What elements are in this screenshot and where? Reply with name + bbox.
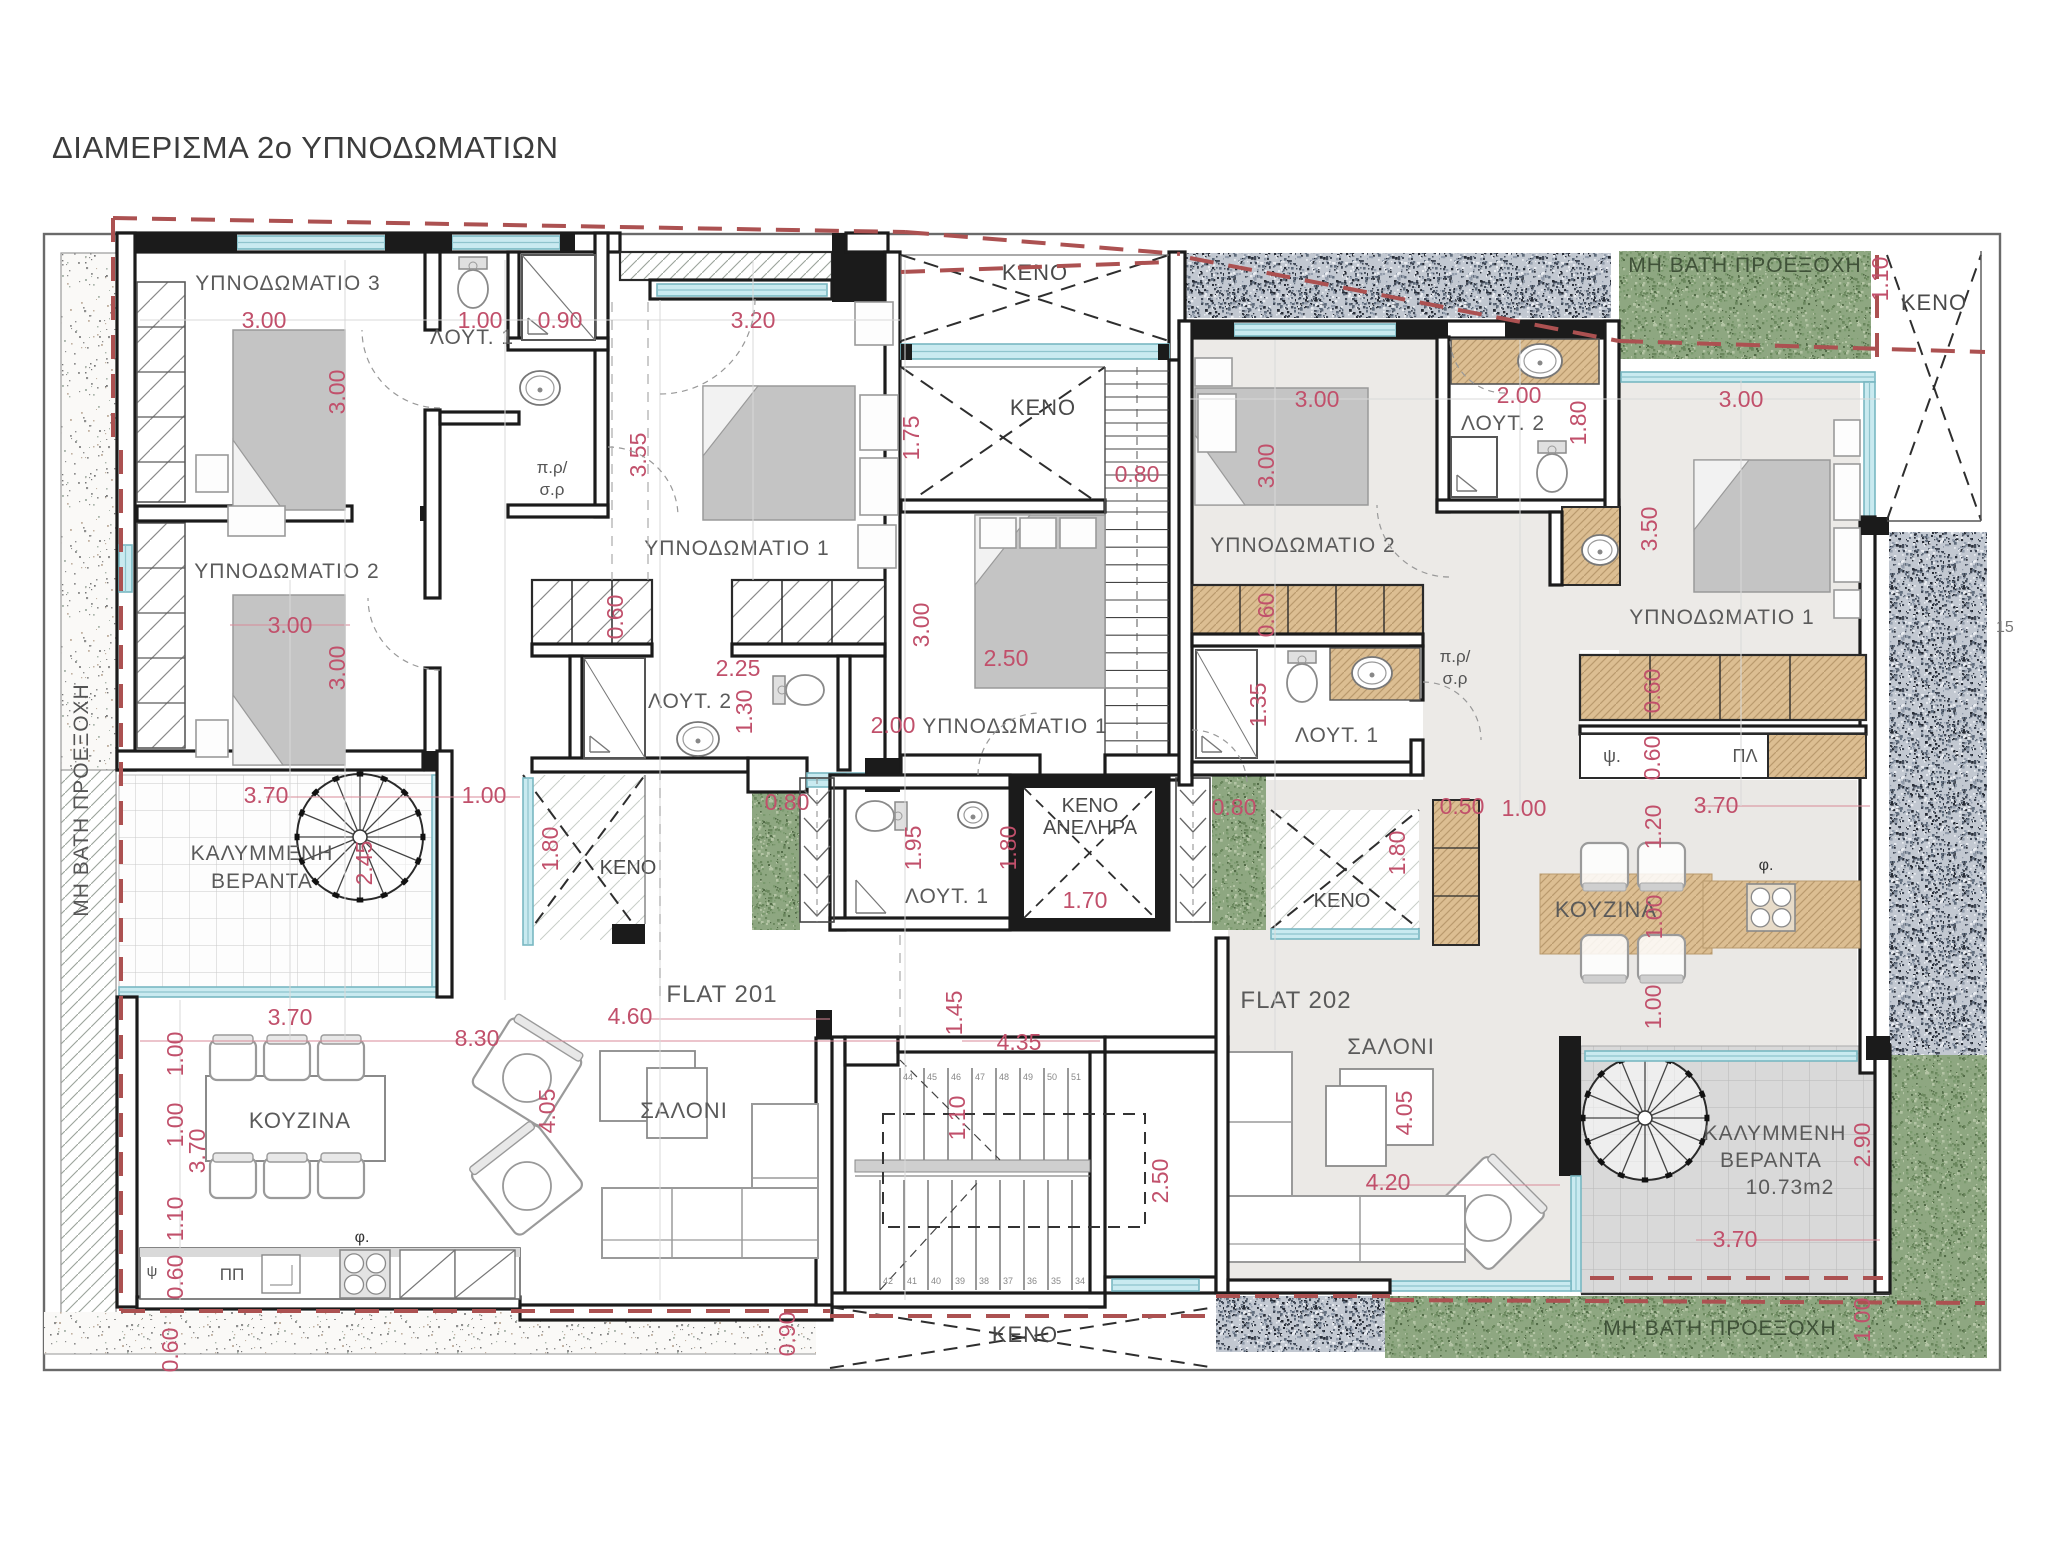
svg-text:0.80: 0.80 <box>1212 794 1257 820</box>
svg-text:ΥΠΝΟΔΩΜΑΤΙΟ 1: ΥΠΝΟΔΩΜΑΤΙΟ 1 <box>1629 606 1814 629</box>
svg-text:2.90: 2.90 <box>1849 1123 1875 1168</box>
svg-text:1.75: 1.75 <box>898 416 924 461</box>
svg-text:3.70: 3.70 <box>1694 792 1739 818</box>
svg-text:0.90: 0.90 <box>774 1312 800 1357</box>
svg-text:ΑΝΕΛΗΡΑ: ΑΝΕΛΗΡΑ <box>1043 817 1138 839</box>
svg-text:35: 35 <box>1051 1276 1061 1286</box>
svg-text:3.00: 3.00 <box>324 646 350 691</box>
svg-text:0.90: 0.90 <box>538 307 583 333</box>
svg-text:2.50: 2.50 <box>984 645 1029 671</box>
svg-text:2.00: 2.00 <box>871 712 916 738</box>
svg-text:3.70: 3.70 <box>244 782 289 808</box>
svg-text:1.00: 1.00 <box>458 307 503 333</box>
svg-text:39: 39 <box>955 1276 965 1286</box>
svg-text:50: 50 <box>1047 1072 1057 1082</box>
svg-text:FLAT 202: FLAT 202 <box>1240 987 1351 1014</box>
svg-text:0.60: 0.60 <box>157 1328 183 1373</box>
svg-text:1.10: 1.10 <box>944 1096 970 1141</box>
svg-text:38: 38 <box>979 1276 989 1286</box>
svg-text:3.70: 3.70 <box>184 1129 210 1174</box>
svg-text:ΜΗ ΒΑΤΗ ΠΡΟΕΞΟΧΗ: ΜΗ ΒΑΤΗ ΠΡΟΕΞΟΧΗ <box>1603 1317 1836 1340</box>
svg-text:ΚΑΛΥΜΜΕΝΗ: ΚΑΛΥΜΜΕΝΗ <box>191 842 334 865</box>
svg-text:1.00: 1.00 <box>162 1032 188 1077</box>
svg-text:ΚΕΝΟ: ΚΕΝΟ <box>1901 290 1967 315</box>
svg-text:ΠΛ: ΠΛ <box>1732 746 1757 766</box>
svg-text:36: 36 <box>1027 1276 1037 1286</box>
svg-text:1.10: 1.10 <box>162 1197 188 1242</box>
svg-text:ΜΗ ΒΑΤΗ ΠΡΟΕΞΟΧΗ: ΜΗ ΒΑΤΗ ΠΡΟΕΞΟΧΗ <box>1628 254 1861 277</box>
svg-text:ΚΟΥΖΙΝΑ: ΚΟΥΖΙΝΑ <box>249 1108 351 1133</box>
svg-text:1.00: 1.00 <box>1849 1298 1875 1343</box>
svg-text:3.00: 3.00 <box>908 603 934 648</box>
svg-text:3.70: 3.70 <box>268 1004 313 1030</box>
svg-text:2.00: 2.00 <box>1497 382 1542 408</box>
svg-text:1.80: 1.80 <box>1384 831 1410 876</box>
svg-text:ΥΠΝΟΔΩΜΑΤΙΟ 2: ΥΠΝΟΔΩΜΑΤΙΟ 2 <box>194 560 379 583</box>
svg-text:0.60: 0.60 <box>1639 669 1665 714</box>
svg-text:10.73m2: 10.73m2 <box>1746 1176 1835 1199</box>
svg-text:3.20: 3.20 <box>731 307 776 333</box>
svg-text:ψ: ψ <box>147 1263 158 1280</box>
svg-text:3.00: 3.00 <box>242 307 287 333</box>
svg-text:4.05: 4.05 <box>1391 1091 1417 1136</box>
svg-text:ΛΟΥΤ. 1: ΛΟΥΤ. 1 <box>905 885 989 908</box>
svg-text:3.70: 3.70 <box>1713 1226 1758 1252</box>
svg-text:1.45: 1.45 <box>941 991 967 1036</box>
svg-text:ΣΑΛΟΝΙ: ΣΑΛΟΝΙ <box>640 1098 728 1123</box>
svg-text:3.00: 3.00 <box>324 370 350 415</box>
svg-text:41: 41 <box>907 1276 917 1286</box>
svg-text:4.05: 4.05 <box>534 1089 560 1134</box>
svg-text:φ.: φ. <box>355 1229 370 1246</box>
svg-text:ψ.: ψ. <box>1603 746 1621 766</box>
svg-text:3.55: 3.55 <box>625 433 651 478</box>
svg-text:ΚΕΝΟ: ΚΕΝΟ <box>1002 260 1068 285</box>
svg-text:46: 46 <box>951 1072 961 1082</box>
svg-text:ΛΟΥΤ. 1: ΛΟΥΤ. 1 <box>1295 724 1379 747</box>
svg-text:2.25: 2.25 <box>716 655 761 681</box>
svg-text:34: 34 <box>1075 1276 1085 1286</box>
svg-text:π.ρ/: π.ρ/ <box>1440 647 1471 666</box>
svg-text:0.60: 0.60 <box>602 595 628 640</box>
svg-text:2.45: 2.45 <box>351 841 377 886</box>
svg-text:3.50: 3.50 <box>1636 507 1662 552</box>
svg-text:ΚΕΝΟ: ΚΕΝΟ <box>600 857 657 879</box>
svg-text:ΜΗ ΒΑΤΗ ΠΡΟΕΞΟΧΗ: ΜΗ ΒΑΤΗ ΠΡΟΕΞΟΧΗ <box>70 683 93 916</box>
svg-text:51: 51 <box>1071 1072 1081 1082</box>
svg-text:1.80: 1.80 <box>537 827 563 872</box>
svg-text:3.00: 3.00 <box>1253 444 1279 489</box>
svg-text:1.80: 1.80 <box>995 826 1021 871</box>
svg-text:1.00: 1.00 <box>1640 985 1666 1030</box>
svg-text:σ.ρ: σ.ρ <box>540 480 565 499</box>
svg-text:3.00: 3.00 <box>268 612 313 638</box>
svg-text:0.50: 0.50 <box>1440 793 1485 819</box>
svg-text:ΚΕΝΟ: ΚΕΝΟ <box>1010 395 1076 420</box>
svg-text:ΥΠΝΟΔΩΜΑΤΙΟ 3: ΥΠΝΟΔΩΜΑΤΙΟ 3 <box>195 272 380 295</box>
svg-text:ΒΕΡΑΝΤΑ: ΒΕΡΑΝΤΑ <box>211 870 313 893</box>
svg-text:1.30: 1.30 <box>731 690 757 735</box>
svg-text:0.60: 0.60 <box>1639 736 1665 781</box>
svg-text:φ.: φ. <box>1759 857 1774 874</box>
svg-text:4.60: 4.60 <box>608 1003 653 1029</box>
svg-text:π.ρ/: π.ρ/ <box>537 458 568 477</box>
svg-text:0.60: 0.60 <box>162 1255 188 1300</box>
svg-text:49: 49 <box>1023 1072 1033 1082</box>
svg-text:48: 48 <box>999 1072 1009 1082</box>
svg-text:0.80: 0.80 <box>765 789 810 815</box>
svg-text:ΛΟΥΤ. 2: ΛΟΥΤ. 2 <box>1461 412 1545 435</box>
svg-text:4.35: 4.35 <box>997 1029 1042 1055</box>
svg-text:1.80: 1.80 <box>1565 401 1591 446</box>
svg-text:ΚΕΝΟ: ΚΕΝΟ <box>992 1322 1058 1347</box>
svg-text:1.10: 1.10 <box>1867 257 1893 302</box>
svg-text:1.00: 1.00 <box>1502 795 1547 821</box>
svg-text:0.60: 0.60 <box>1253 593 1279 638</box>
svg-text:ΥΠΝΟΔΩΜΑΤΙΟ 2: ΥΠΝΟΔΩΜΑΤΙΟ 2 <box>1210 534 1395 557</box>
svg-text:1.95: 1.95 <box>900 826 926 871</box>
svg-text:1.00: 1.00 <box>1641 895 1667 940</box>
svg-text:σ.ρ: σ.ρ <box>1443 669 1468 688</box>
svg-text:ΚΕΝΟ: ΚΕΝΟ <box>1062 795 1119 817</box>
svg-text:FLAT 201: FLAT 201 <box>666 981 777 1008</box>
svg-text:ΠΠ: ΠΠ <box>220 1265 245 1284</box>
svg-text:ΥΠΝΟΔΩΜΑΤΙΟ 1: ΥΠΝΟΔΩΜΑΤΙΟ 1 <box>644 537 829 560</box>
svg-text:4.20: 4.20 <box>1366 1169 1411 1195</box>
svg-text:1.35: 1.35 <box>1245 683 1271 728</box>
svg-text:1.00: 1.00 <box>462 782 507 808</box>
svg-text:15: 15 <box>1996 619 2014 636</box>
svg-text:45: 45 <box>927 1072 937 1082</box>
svg-text:ΛΟΥΤ. 2: ΛΟΥΤ. 2 <box>648 690 732 713</box>
svg-text:ΒΕΡΑΝΤΑ: ΒΕΡΑΝΤΑ <box>1720 1149 1822 1172</box>
svg-text:0.80: 0.80 <box>1115 461 1160 487</box>
svg-text:3.00: 3.00 <box>1719 386 1764 412</box>
svg-text:42: 42 <box>883 1276 893 1286</box>
svg-text:1.70: 1.70 <box>1063 887 1108 913</box>
svg-text:47: 47 <box>975 1072 985 1082</box>
svg-text:ΔΙΑΜΕΡΙΣΜΑ 2ο ΥΠΝΟΔΩΜΑΤΙΩΝ: ΔΙΑΜΕΡΙΣΜΑ 2ο ΥΠΝΟΔΩΜΑΤΙΩΝ <box>52 130 559 165</box>
svg-text:3.00: 3.00 <box>1295 386 1340 412</box>
svg-text:37: 37 <box>1003 1276 1013 1286</box>
svg-text:ΚΑΛΥΜΜΕΝΗ: ΚΑΛΥΜΜΕΝΗ <box>1704 1122 1847 1145</box>
svg-text:1.20: 1.20 <box>1640 805 1666 850</box>
svg-text:2.50: 2.50 <box>1147 1159 1173 1204</box>
svg-text:8.30: 8.30 <box>455 1025 500 1051</box>
svg-text:ΚΕΝΟ: ΚΕΝΟ <box>1314 890 1371 912</box>
svg-text:44: 44 <box>903 1072 913 1082</box>
svg-text:ΣΑΛΟΝΙ: ΣΑΛΟΝΙ <box>1347 1034 1435 1059</box>
svg-text:40: 40 <box>931 1276 941 1286</box>
